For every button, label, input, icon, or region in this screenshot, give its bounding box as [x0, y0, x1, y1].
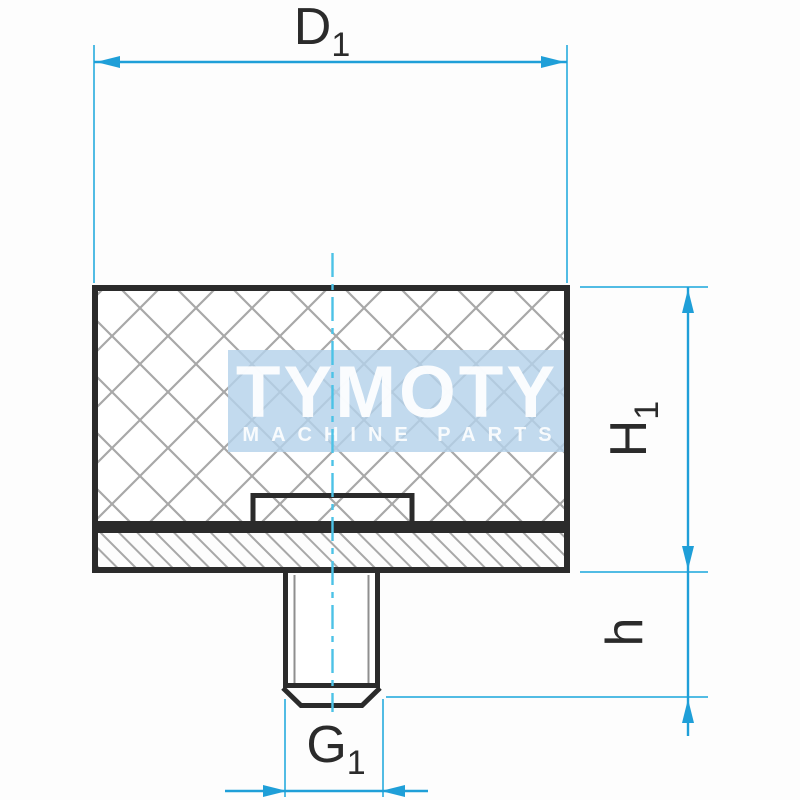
technical-drawing: TYMOTY MACHINE PARTS — [0, 0, 800, 800]
arrowhead-down-icon — [682, 546, 694, 570]
arrowhead-up-icon — [682, 289, 694, 313]
watermark: TYMOTY MACHINE PARTS — [228, 350, 567, 452]
watermark-tagline: MACHINE PARTS — [242, 424, 563, 446]
d1-label: D1 — [294, 0, 350, 64]
arrowhead-right-icon — [541, 56, 565, 68]
dimension-d1: D1 — [94, 0, 567, 283]
arrowhead-up-icon — [682, 699, 694, 723]
dimension-g1: G1 — [225, 699, 428, 797]
arrowhead-left-icon — [381, 785, 405, 797]
watermark-brand: TYMOTY — [236, 352, 558, 433]
g1-label: G1 — [306, 716, 365, 782]
arrowhead-left-icon — [96, 56, 120, 68]
arrowhead-right-icon — [263, 785, 287, 797]
h-label: h — [596, 618, 654, 647]
drawing-canvas: TYMOTY MACHINE PARTS — [0, 0, 800, 800]
metal-plate-hatch — [95, 530, 567, 570]
dimension-h: h — [386, 572, 708, 736]
h1-label: H1 — [600, 401, 666, 457]
metal-plate — [95, 530, 567, 570]
dimension-h1: H1 — [580, 287, 708, 572]
